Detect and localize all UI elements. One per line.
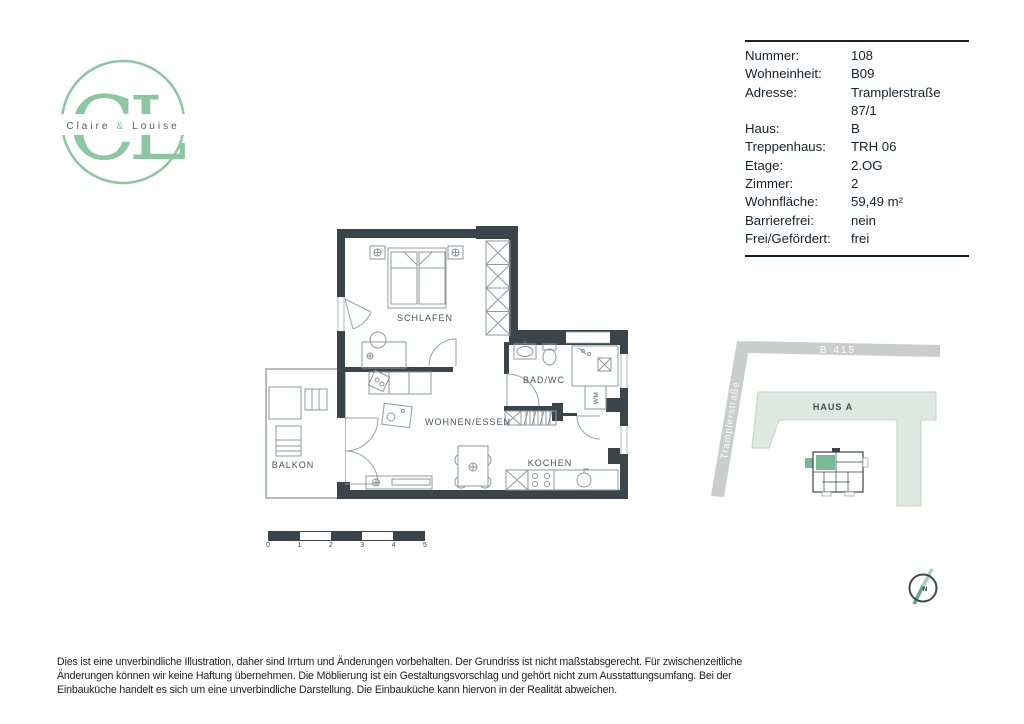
hall-wardrobe xyxy=(505,411,556,425)
sideboard xyxy=(366,476,432,489)
bedroom-door xyxy=(429,339,456,366)
room-label-wohnen-essen: WOHNEN/ESSEN xyxy=(425,417,511,427)
room-label-schlafen: SCHLAFEN xyxy=(397,313,453,323)
disclaimer-line: Einbauküche handelt es sich um eine unve… xyxy=(57,684,742,698)
room-label-bad-wc: BAD/WC xyxy=(523,375,565,385)
info-label: Frei/Gefördert: xyxy=(745,230,851,248)
unit-info-table: Nummer:108 Wohneinheit:B09 Adresse:Tramp… xyxy=(745,40,969,257)
building-haus-b-footprint xyxy=(805,448,868,496)
info-value: 59,49 m² xyxy=(851,193,969,211)
scale-bar xyxy=(268,531,425,541)
scale-tick: 5 xyxy=(423,542,427,549)
apartment-floorplan: SCHLAFEN BAD/WC WOHNEN/ESSEN KOCHEN BALK… xyxy=(255,220,635,510)
brand-logo: CL Claire&Louise xyxy=(53,52,193,192)
table-row: Wohnfläche:59,49 m² xyxy=(745,193,969,211)
building-label-haus-a: HAUS A xyxy=(813,402,853,412)
info-label: Etage: xyxy=(745,157,851,175)
info-label: Treppenhaus: xyxy=(745,138,851,156)
balcony-door-upper xyxy=(345,418,378,451)
table-row: Barrierefrei:nein xyxy=(745,212,969,230)
nightstand-left xyxy=(370,246,385,259)
logo-wordmark: Claire&Louise xyxy=(66,121,179,132)
table-row: Frei/Gefördert:frei xyxy=(745,230,969,248)
compass: N xyxy=(898,562,950,614)
scale-tick: 0 xyxy=(266,542,270,549)
table-row: Wohneinheit:B09 xyxy=(745,65,969,83)
info-label: Wohneinheit: xyxy=(745,65,851,83)
scale-tick: 4 xyxy=(392,542,396,549)
scale-tick: 2 xyxy=(329,542,333,549)
info-value: Tramplerstraße 87/1 xyxy=(851,84,969,121)
info-label: Adresse: xyxy=(745,84,851,121)
floorplan-sheet: CL Claire&Louise Nummer:108 Wohneinheit:… xyxy=(0,0,1024,724)
info-label: Haus: xyxy=(745,120,851,138)
logo-name-first: Claire xyxy=(66,121,110,132)
info-value: B09 xyxy=(851,65,969,83)
road-label-b415: B 415 xyxy=(820,345,856,356)
info-label: Nummer: xyxy=(745,47,851,65)
info-value: TRH 06 xyxy=(851,138,969,156)
logo-name-second: Louise xyxy=(132,121,179,132)
coffee-table xyxy=(382,403,412,427)
road-label-tramplerstrasse: Tramplerstraße xyxy=(719,381,742,460)
info-label: Wohnfläche: xyxy=(745,193,851,211)
info-value: 108 xyxy=(851,47,969,65)
table-row: Haus:B xyxy=(745,120,969,138)
kitchen-door xyxy=(577,416,600,439)
toilet xyxy=(543,344,556,365)
info-value: 2.OG xyxy=(851,157,969,175)
nightstand-right xyxy=(448,246,463,259)
scale-tick: 3 xyxy=(360,542,364,549)
info-value: 2 xyxy=(851,175,969,193)
disclaimer-text: Dies ist eine unverbindliche Illustratio… xyxy=(57,656,742,697)
kitchen-counter xyxy=(506,469,618,490)
balcony xyxy=(266,369,345,498)
info-value: B xyxy=(851,120,969,138)
room-label-kochen: KOCHEN xyxy=(528,458,573,468)
table-row: Treppenhaus:TRH 06 xyxy=(745,138,969,156)
table-row: Etage:2.OG xyxy=(745,157,969,175)
info-label: Zimmer: xyxy=(745,175,851,193)
scale-segment xyxy=(393,532,424,540)
info-value: nein xyxy=(851,212,969,230)
table-row: Adresse:Tramplerstraße 87/1 xyxy=(745,84,969,121)
scale-segment xyxy=(362,532,393,540)
furniture xyxy=(362,241,618,490)
sofa xyxy=(368,370,431,394)
scale-ticks: 0 1 2 3 4 5 xyxy=(266,542,427,549)
washing-machine-label: WM xyxy=(593,392,600,405)
table-row: Zimmer:2 xyxy=(745,175,969,193)
logo-ampersand: & xyxy=(116,121,126,132)
table-row: Nummer:108 xyxy=(745,47,969,65)
disclaimer-line: Änderungen können wir keine Haftung über… xyxy=(57,670,742,684)
info-label: Barrierefrei: xyxy=(745,212,851,230)
balcony-door-lower xyxy=(345,451,378,484)
dresser xyxy=(362,332,406,368)
scale-tick: 1 xyxy=(297,542,301,549)
shower xyxy=(572,346,618,386)
dining-table xyxy=(455,446,491,488)
unit-highlight xyxy=(816,455,835,470)
info-value: frei xyxy=(851,230,969,248)
scale-segment xyxy=(269,532,300,540)
compass-north-label: N xyxy=(923,586,928,593)
wardrobe xyxy=(486,241,510,335)
scale-segment xyxy=(300,532,331,540)
disclaimer-line: Dies ist eine unverbindliche Illustratio… xyxy=(57,656,742,670)
bed xyxy=(388,248,446,308)
bath-sink xyxy=(514,341,536,359)
room-label-balkon: BALKON xyxy=(272,460,315,470)
bedroom-window-swing xyxy=(345,299,371,329)
site-plan: B 415 Tramplerstraße HAUS A xyxy=(695,330,955,515)
scale-segment xyxy=(331,532,362,540)
